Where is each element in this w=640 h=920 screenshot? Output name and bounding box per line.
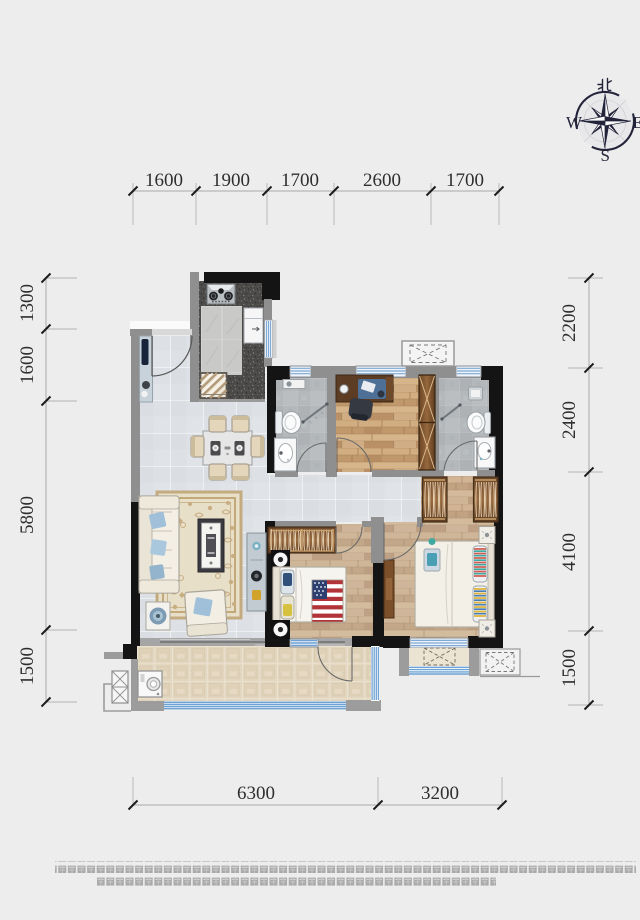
svg-text:1600: 1600 <box>17 346 38 384</box>
svg-text:1500: 1500 <box>559 649 580 687</box>
svg-text:5800: 5800 <box>17 496 38 534</box>
svg-text:1600: 1600 <box>145 170 183 191</box>
svg-text:S: S <box>601 146 610 165</box>
svg-text:2600: 2600 <box>363 170 401 191</box>
svg-text:2400: 2400 <box>559 401 580 439</box>
svg-text:1300: 1300 <box>17 284 38 322</box>
svg-text:1900: 1900 <box>212 170 250 191</box>
svg-text:1700: 1700 <box>446 170 484 191</box>
svg-text:6300: 6300 <box>237 783 275 804</box>
svg-text:1500: 1500 <box>17 647 38 685</box>
svg-text:1700: 1700 <box>281 170 319 191</box>
svg-text:W: W <box>566 113 583 132</box>
svg-text:3200: 3200 <box>421 783 459 804</box>
svg-text:2200: 2200 <box>559 304 580 342</box>
svg-text:4100: 4100 <box>559 533 580 571</box>
svg-text:E: E <box>633 113 640 132</box>
